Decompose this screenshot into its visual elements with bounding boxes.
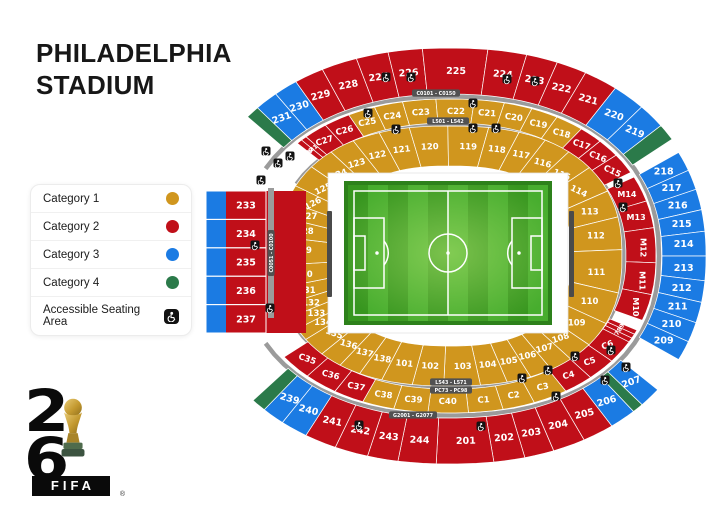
legend-label: Accessible Seating Area: [43, 304, 156, 328]
accessible-seating-icon: [614, 179, 623, 188]
accessible-seating-icon: [622, 363, 631, 372]
legend-card: Category 1Category 2Category 3Category 4…: [30, 184, 192, 336]
accessible-seating-icon: [469, 99, 478, 108]
legend-color-dot: [166, 220, 179, 233]
accessible-seating-icon: [266, 304, 275, 313]
band-chip-top_outer: C0101 - C0150: [412, 89, 460, 97]
registered-mark: ®: [120, 491, 125, 498]
accessible-seating-icon: [355, 421, 364, 430]
stadium-seating-page: { "page": { "title_line1": "PHILADELPHIA…: [0, 0, 720, 518]
band-chip-top_inner: L501 - L542: [427, 117, 469, 125]
legend-item-category-2: Category 2: [31, 212, 191, 240]
legend-label: Category 2: [43, 221, 99, 233]
accessible-seating-icon: [477, 422, 486, 431]
accessible-seating-icon: [469, 124, 478, 133]
legend-color-dot: [166, 248, 179, 261]
accessible-seating-icon: [531, 77, 540, 86]
team-bench-right: [569, 211, 574, 297]
accessible-seating-icon: [601, 376, 610, 385]
legend-label: Category 3: [43, 249, 99, 261]
world-cup-trophy-icon: [57, 398, 89, 466]
accessible-seating-icon: [492, 124, 501, 133]
accessible-seating-icon: [544, 366, 553, 375]
section-m12[interactable]: [624, 228, 656, 263]
accessible-seating-icon: [382, 73, 391, 82]
accessible-seating-icon: [552, 392, 561, 401]
team-bench-left: [327, 211, 332, 297]
band-chip-left: C0051 - C0100: [267, 230, 275, 276]
accessible-seating-icon: [257, 176, 266, 185]
accessible-seating-icon: [262, 147, 271, 156]
legend-color-dot: [166, 192, 179, 205]
soccer-pitch: [327, 173, 574, 333]
band-chip-bottom_outer: G2001 - G2077: [389, 411, 437, 419]
accessible-seating-icon: [251, 241, 260, 250]
legend-label: Category 1: [43, 193, 99, 205]
wheelchair-icon: [164, 309, 179, 324]
accessible-seating-icon: [364, 109, 373, 118]
left-block-strip[interactable]: [206, 191, 226, 333]
legend-label: Category 4: [43, 277, 99, 289]
legend-item-accessible: Accessible Seating Area: [31, 296, 191, 335]
legend-color-dot: [166, 276, 179, 289]
section-225[interactable]: [422, 48, 488, 95]
left-stand-block: 233234235236237: [206, 188, 306, 333]
accessible-seating-icon: [407, 73, 416, 82]
accessible-seating-icon: [571, 352, 580, 361]
legend-item-category-3: Category 3: [31, 240, 191, 268]
stadium-map: 2312302292282272262252242232222212202192…: [198, 8, 720, 510]
band-chip-bottom_inner_2: PC73 - PC98: [430, 386, 472, 394]
accessible-seating-icon: [392, 125, 401, 134]
fifa-world-cup-26-logo: 2 6 FIFA ®: [24, 388, 122, 506]
band-chip-bottom_inner_1: L543 - L571: [430, 378, 472, 386]
legend-item-category-4: Category 4: [31, 268, 191, 296]
accessible-seating-icon: [619, 203, 628, 212]
accessible-seating-icon: [503, 75, 512, 84]
legend-item-category-1: Category 1: [31, 185, 191, 212]
accessible-seating-icon: [607, 346, 616, 355]
accessible-seating-icon: [286, 152, 295, 161]
fifa-wordmark: FIFA: [32, 476, 110, 496]
accessible-seating-icon: [518, 374, 527, 383]
accessible-seating-icon: [274, 159, 283, 168]
